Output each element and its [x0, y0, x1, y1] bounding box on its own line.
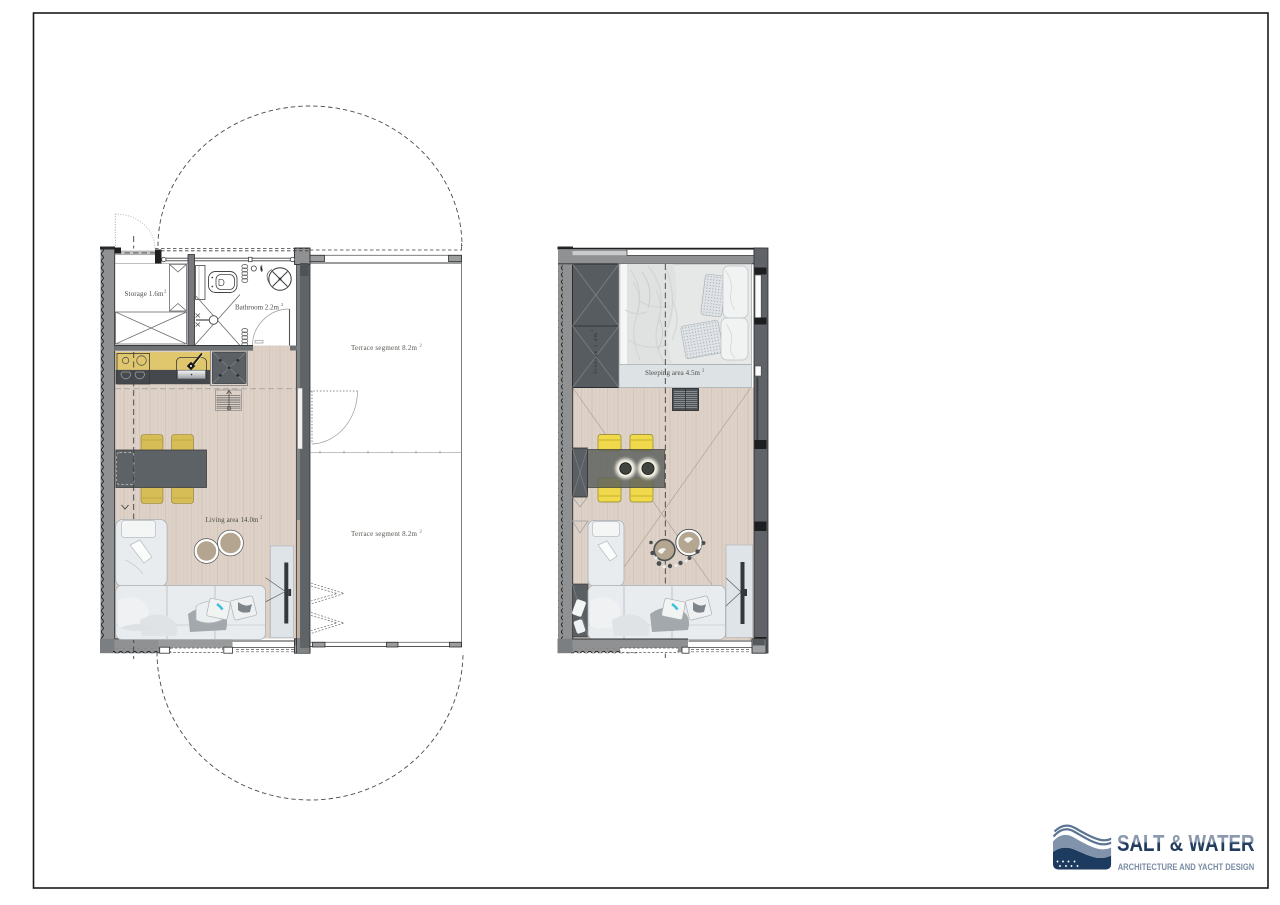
svg-text:2: 2 — [281, 302, 283, 307]
svg-text:Terrace segment 8.2m: Terrace segment 8.2m — [351, 344, 418, 352]
svg-text:2: 2 — [164, 289, 166, 294]
svg-text:ARCHITECTURE AND YACHT DESIGN: ARCHITECTURE AND YACHT DESIGN — [1118, 862, 1255, 873]
svg-text:Storage 1.6m: Storage 1.6m — [125, 290, 165, 298]
svg-text:2: 2 — [260, 515, 262, 520]
svg-text:2: 2 — [420, 343, 422, 348]
svg-text:Storage 1.4m: Storage 1.4m — [593, 332, 599, 374]
svg-text:Living area 14.0m: Living area 14.0m — [206, 516, 260, 524]
svg-text:Bathroom 2.2m: Bathroom 2.2m — [235, 304, 280, 312]
svg-text:2: 2 — [420, 529, 422, 534]
svg-text:Sleeping area 4.5m: Sleeping area 4.5m — [645, 369, 701, 377]
svg-text:Terrace segment 8.2m: Terrace segment 8.2m — [351, 530, 418, 538]
svg-text:2: 2 — [702, 368, 704, 373]
svg-text:SALT & WATER: SALT & WATER — [1117, 830, 1255, 856]
svg-text:2: 2 — [590, 330, 594, 332]
